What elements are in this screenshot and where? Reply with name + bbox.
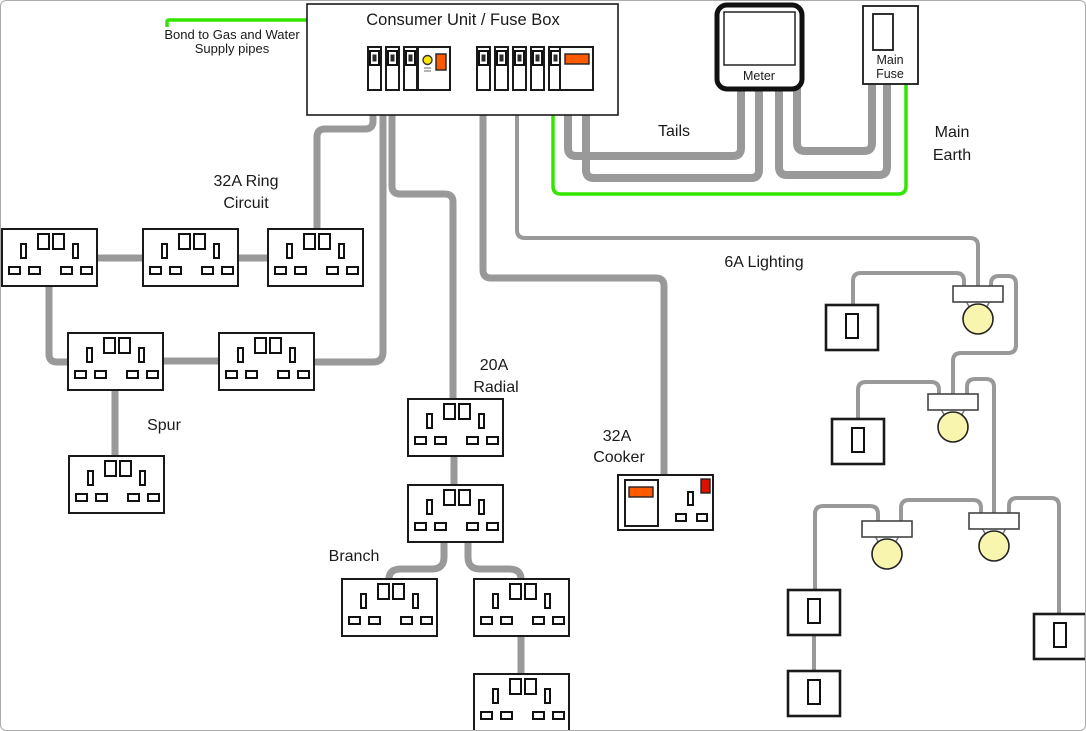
- main-fuse-unit: Main Fuse: [863, 6, 918, 84]
- main-fuse-label-1: Main: [876, 53, 903, 67]
- sockets-group: [2, 229, 569, 731]
- main-fuse-label-2: Fuse: [876, 67, 904, 81]
- ring-socket-3: [268, 229, 363, 286]
- cooker-socket-pin-slot: [697, 514, 707, 521]
- main-switch-toggle: [565, 54, 589, 64]
- wire-light1-switch1: [853, 273, 964, 305]
- wire-light3-switch3: [815, 506, 878, 590]
- mcb-1: [368, 47, 381, 90]
- ceiling-light-1: [953, 286, 1003, 334]
- cooker-control-unit: [618, 475, 713, 530]
- main-fuse-carrier: [873, 14, 893, 50]
- rcd-test-button: [423, 56, 432, 65]
- lighting-label: 6A Lighting: [724, 254, 803, 271]
- diagram-canvas: Consumer Unit / Fuse Box Meter Main Fuse: [1, 1, 1086, 731]
- light-switch-1: [826, 305, 878, 350]
- consumer-unit-title: Consumer Unit / Fuse Box: [366, 11, 560, 29]
- branch-socket-bottom: [474, 674, 569, 731]
- cooker-neon-indicator: [701, 479, 710, 493]
- ceiling-light-4: [969, 513, 1019, 561]
- rcd-switch-toggle: [436, 54, 446, 70]
- consumer-unit: Consumer Unit / Fuse Box: [307, 4, 618, 115]
- ring-socket-4: [68, 333, 163, 390]
- switches-group: [788, 305, 1086, 716]
- bond-label-line1: Bond to Gas and Water: [164, 27, 300, 42]
- spur-socket: [69, 456, 164, 513]
- spur-label: Spur: [147, 417, 181, 434]
- wire-branch-left: [389, 542, 444, 579]
- cooker-socket-earth-slot: [688, 492, 693, 505]
- wire-tail-meter-fuse-1: [797, 84, 872, 151]
- main-switch-unit: [560, 47, 593, 90]
- light-switch-2: [832, 419, 884, 464]
- ring-socket-2: [143, 229, 238, 286]
- rcd-unit: [418, 47, 450, 90]
- light-switch-3: [788, 590, 840, 635]
- meter-display: [724, 12, 795, 65]
- ceiling-light-2: [928, 394, 978, 442]
- meter-label: Meter: [743, 69, 775, 83]
- wire-radial-feed: [392, 114, 453, 399]
- cooker-label-line2: Cooker: [593, 449, 645, 466]
- bond-label-line2: Supply pipes: [195, 41, 270, 56]
- ring-socket-1: [2, 229, 97, 286]
- mcb-6: [513, 47, 526, 90]
- mcb-7: [531, 47, 544, 90]
- wire-branch-right: [468, 542, 521, 579]
- mcb-5: [495, 47, 508, 90]
- cooker-socket-pin-slot: [676, 514, 686, 521]
- wire-ring-feed-a: [317, 114, 373, 229]
- radial-socket-1: [408, 399, 503, 456]
- branch-socket-right: [474, 579, 569, 636]
- radial-socket-2: [408, 485, 503, 542]
- cooker-switch-toggle: [629, 487, 653, 497]
- mcb-2: [386, 47, 399, 90]
- ring-circuit-label-line2: Circuit: [223, 195, 269, 212]
- light-switch-5: [1034, 614, 1086, 659]
- radial-label-line1: 20A: [480, 357, 509, 374]
- radial-label-line2: Radial: [473, 379, 518, 396]
- ring-socket-5: [219, 333, 314, 390]
- light-switch-4: [788, 671, 840, 716]
- ring-circuit-label-line1: 32A Ring: [214, 173, 279, 190]
- wire-light2-switch2: [858, 382, 939, 419]
- tails-label: Tails: [658, 123, 690, 140]
- electricity-meter: Meter: [717, 5, 802, 89]
- ceiling-light-3: [862, 521, 912, 569]
- main-earth-label-line1: Main: [935, 124, 970, 141]
- wiring-diagram: Consumer Unit / Fuse Box Meter Main Fuse: [0, 0, 1086, 731]
- main-earth-label-line2: Earth: [933, 147, 971, 164]
- mcb-4: [477, 47, 490, 90]
- branch-label: Branch: [329, 548, 380, 565]
- wire-ring-link-1-4: [49, 286, 68, 362]
- wire-bond-to-pipes: [167, 20, 307, 27]
- branch-socket-left: [342, 579, 437, 636]
- wire-cooker-feed: [483, 114, 664, 479]
- cooker-label-line1: 32A: [603, 428, 632, 445]
- mcb-3: [404, 47, 417, 90]
